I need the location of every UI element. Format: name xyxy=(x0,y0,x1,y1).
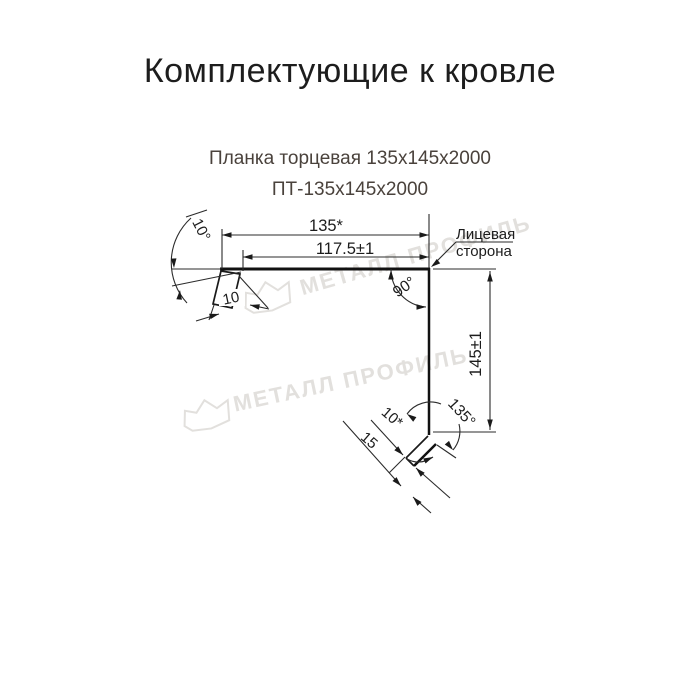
page: { "page": { "title": "Комплектующие к кр… xyxy=(0,0,700,700)
angle-corner: 90° xyxy=(390,274,419,301)
dim-width-flat: 117.5±1 xyxy=(316,240,374,258)
dim-hem-bottom-length: 15 xyxy=(357,429,381,453)
angle-top-left: 10° xyxy=(188,216,213,244)
arrowheads xyxy=(171,232,493,506)
dimension-labels: 135* 117.5±1 145±1 10° 90° 135° 10 10* 1… xyxy=(188,216,515,453)
face-side-label-line2: сторона xyxy=(456,243,513,260)
face-side-label-line1: Лицевая xyxy=(456,226,515,243)
dim-width-total: 135* xyxy=(309,217,344,235)
technical-drawing: 135* 117.5±1 145±1 10° 90° 135° 10 10* 1… xyxy=(0,0,700,700)
angle-bottom: 135° xyxy=(444,395,478,430)
dim-hem-bottom-width: 10* xyxy=(378,404,406,432)
dim-height: 145±1 xyxy=(467,331,485,377)
dim-hem-top: 10 xyxy=(221,289,241,309)
